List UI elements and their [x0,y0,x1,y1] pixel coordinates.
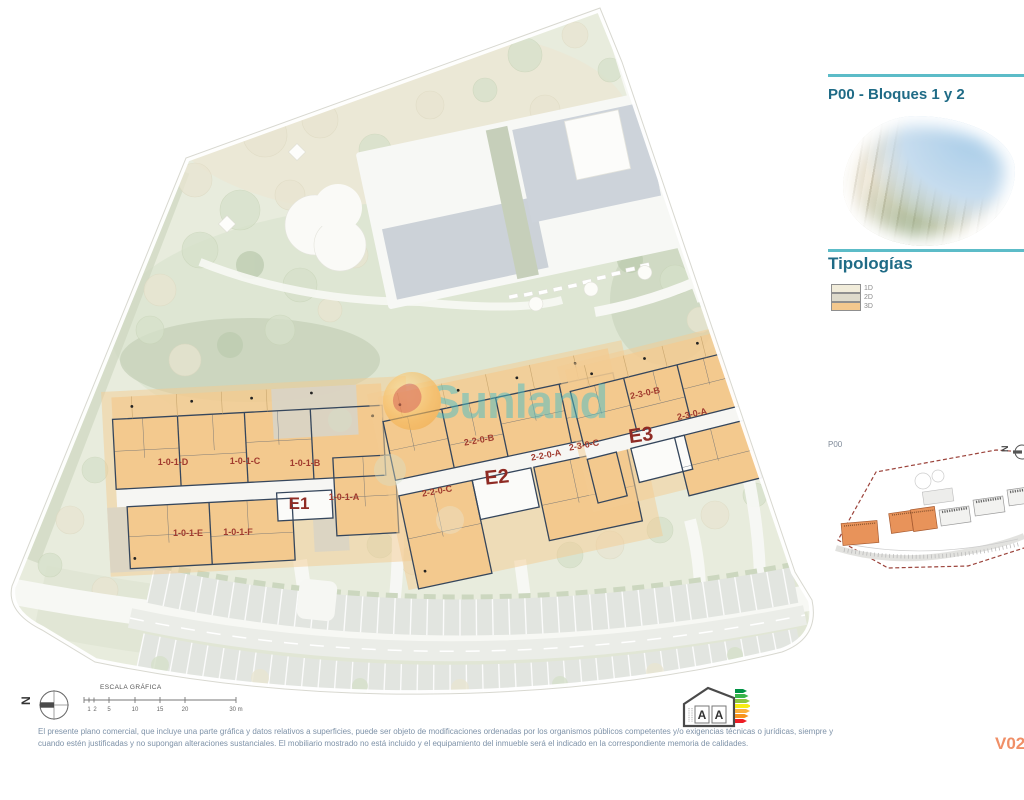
unit-label: 1-0-1-E [173,528,203,538]
unit-label: 1-0-1-D [158,457,189,467]
legend-row-1d: 1D [831,284,873,293]
block-label-e2: E2 [484,465,511,490]
version-tag: V02 [995,734,1024,754]
minimap-compass-letter: N [1000,446,1010,453]
legend-label: 2D [864,293,873,302]
legend-label: 1D [864,284,873,293]
legend-row-2d: 2D [831,293,873,302]
minimap-drawing: N [828,436,1024,586]
disclaimer-line-2: cuando estén justificadas y no supongan … [38,738,973,750]
legend-swatch-1d [831,284,861,293]
disclaimer-text: El presente plano comercial, que incluye… [38,726,973,749]
minimap: P00 [828,436,1024,586]
energy-letter-consumption: A [698,708,707,722]
building-e1 [101,376,415,577]
site-plan-drawing [0,0,1024,800]
disclaimer-line-1: El presente plano comercial, que incluye… [38,726,973,738]
scale-tick: 2 [93,707,97,713]
typologies-legend: 1D 2D 3D [831,284,873,311]
block-label-e3: E3 [627,423,654,449]
unit-label: 1-0-1-A [329,492,360,502]
unit-label: 1-0-1-C [230,456,261,466]
scale-title: ESCALA GRÁFICA [100,684,162,691]
scale-bar: 1 2 5 10 15 20 30 m [82,694,272,716]
legend-swatch-2d [831,293,861,302]
scale-tick: 5 [107,707,111,713]
plan-page: Sunland E1 E2 E3 1-0-1-D 1-0-1-C 1-0-1-B… [0,0,1024,800]
compass-icon: N [12,686,88,724]
scale-tick: 30 m [229,707,242,713]
minimap-floor-label: P00 [828,440,842,449]
energy-letter-emissions: A [715,708,724,722]
divider [828,74,1024,77]
page-title: P00 - Bloques 1 y 2 [828,86,965,103]
unit-label: 1-0-1-F [223,527,253,537]
legend-row-3d: 3D [831,302,873,311]
scale-tick: 15 [157,707,164,713]
scale-tick: 1 [87,707,91,713]
unit-label: 1-0-1-B [290,458,321,468]
scale-tick: 10 [132,707,139,713]
legend-label: 3D [864,302,873,311]
compass-letter: N [19,696,33,705]
typologies-heading: Tipologías [828,254,913,274]
landscape-layer [15,15,808,702]
legend-swatch-3d [831,302,861,311]
divider [828,249,1024,252]
scale-tick: 20 [182,707,189,713]
block-label-e1: E1 [289,494,310,514]
energy-rating-arrows-icon [735,689,750,723]
